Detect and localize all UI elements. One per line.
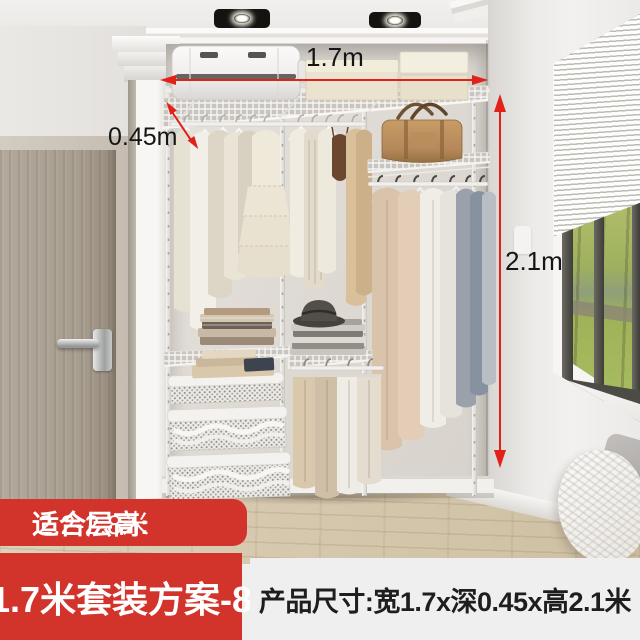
hang-rod-left	[170, 122, 366, 126]
height-arrowhead-bottom	[494, 450, 506, 468]
product-image: 1.7m 0.45m 2.1m 适合层高: 2.2-2.8米 1.7米套装方案-…	[0, 0, 640, 640]
badge-value: 2.2-2.8米	[38, 503, 149, 542]
mesh-drawers	[164, 372, 292, 500]
pants-rod	[290, 366, 384, 370]
door	[0, 150, 116, 506]
product-size-banner: 产品尺寸:宽1.7x深0.45x高2.1米	[250, 558, 640, 640]
hanging-clothes-middle	[290, 127, 372, 306]
hanging-pants	[292, 374, 382, 499]
ceiling-spotlights-left	[214, 9, 270, 28]
window	[548, 6, 640, 426]
width-dimension-label: 1.7m	[306, 42, 364, 73]
height-arrowhead-top	[494, 94, 506, 112]
leather-bag	[382, 104, 462, 162]
width-arrowhead-right	[472, 75, 488, 85]
door-edge	[108, 150, 116, 506]
ceiling-spotlights-right	[369, 12, 421, 28]
ceiling-height-badge: 适合层高: 2.2-2.8米	[0, 499, 247, 546]
fedora-hat	[293, 300, 345, 328]
door-handle-plate	[93, 329, 112, 371]
drawer-3	[167, 452, 292, 500]
width-arrow-line	[164, 79, 486, 81]
plan-name-banner: 1.7米套装方案-8	[0, 553, 242, 640]
door-handle	[57, 339, 99, 348]
height-dimension-label: 2.1m	[505, 246, 563, 277]
height-arrow-line	[499, 108, 501, 454]
folded-clothes-stack	[198, 308, 276, 345]
drawer-2	[167, 406, 288, 451]
hanger-hooks-dark	[378, 176, 485, 182]
garden-wall	[571, 300, 640, 326]
hanging-clothes-right	[372, 188, 496, 451]
suitcase	[172, 46, 306, 100]
hang-rod-right	[368, 182, 488, 186]
hanging-clothes-left	[174, 130, 295, 331]
depth-dimension-label: 0.45m	[108, 123, 177, 152]
closet-organizer-system	[160, 40, 500, 510]
width-arrowhead-left	[160, 75, 176, 85]
